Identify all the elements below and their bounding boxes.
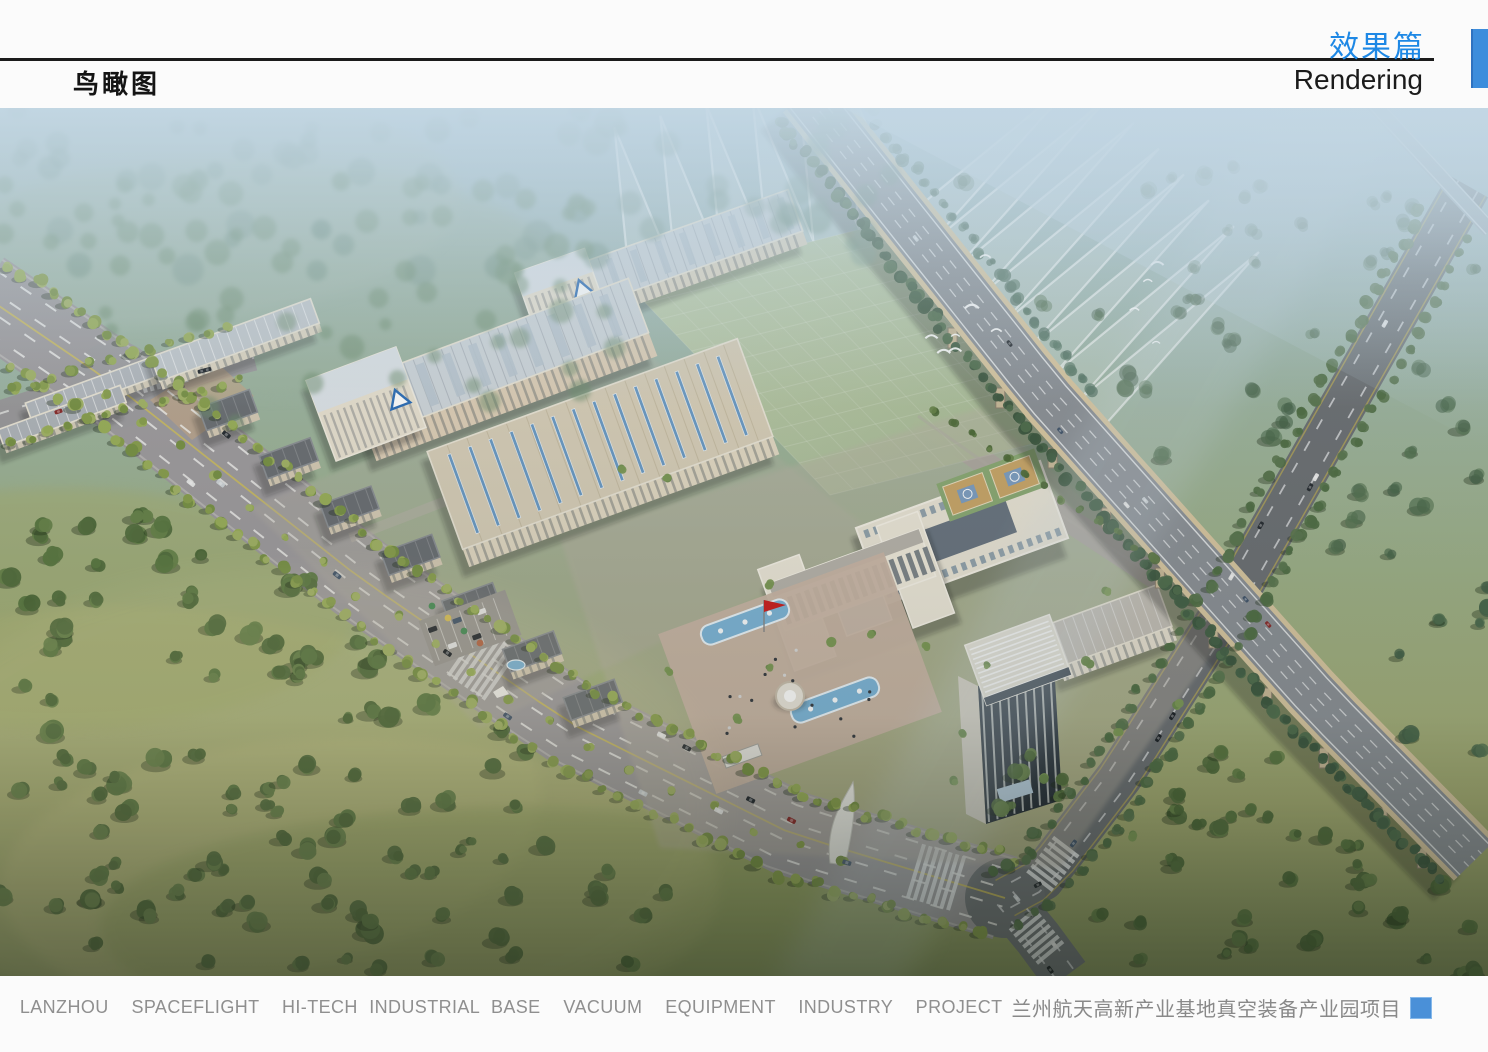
footer-accent-square	[1410, 997, 1432, 1019]
aerial-rendering	[0, 108, 1488, 976]
header-accent-bar	[1471, 29, 1488, 88]
aerial-rendering-canvas	[0, 108, 1488, 976]
footer-caption-en: LANZHOU SPACEFLIGHT HI-TECH INDUSTRIAL B…	[20, 997, 1003, 1018]
section-title-en: Rendering	[1294, 64, 1423, 96]
section-title-zh: 效果篇	[1329, 22, 1425, 66]
footer-caption: LANZHOU SPACEFLIGHT HI-TECH INDUSTRIAL B…	[20, 993, 1432, 1022]
presentation-page: 鸟瞰图 效果篇 Rendering LANZHOU SPACEFLIGHT HI…	[0, 0, 1488, 1052]
atmosphere	[0, 108, 1488, 976]
footer-caption-zh: 兰州航天高新产业基地真空装备产业园项目	[1012, 993, 1402, 1022]
header-rule-line	[0, 58, 1434, 61]
page-title: 鸟瞰图	[73, 64, 160, 101]
